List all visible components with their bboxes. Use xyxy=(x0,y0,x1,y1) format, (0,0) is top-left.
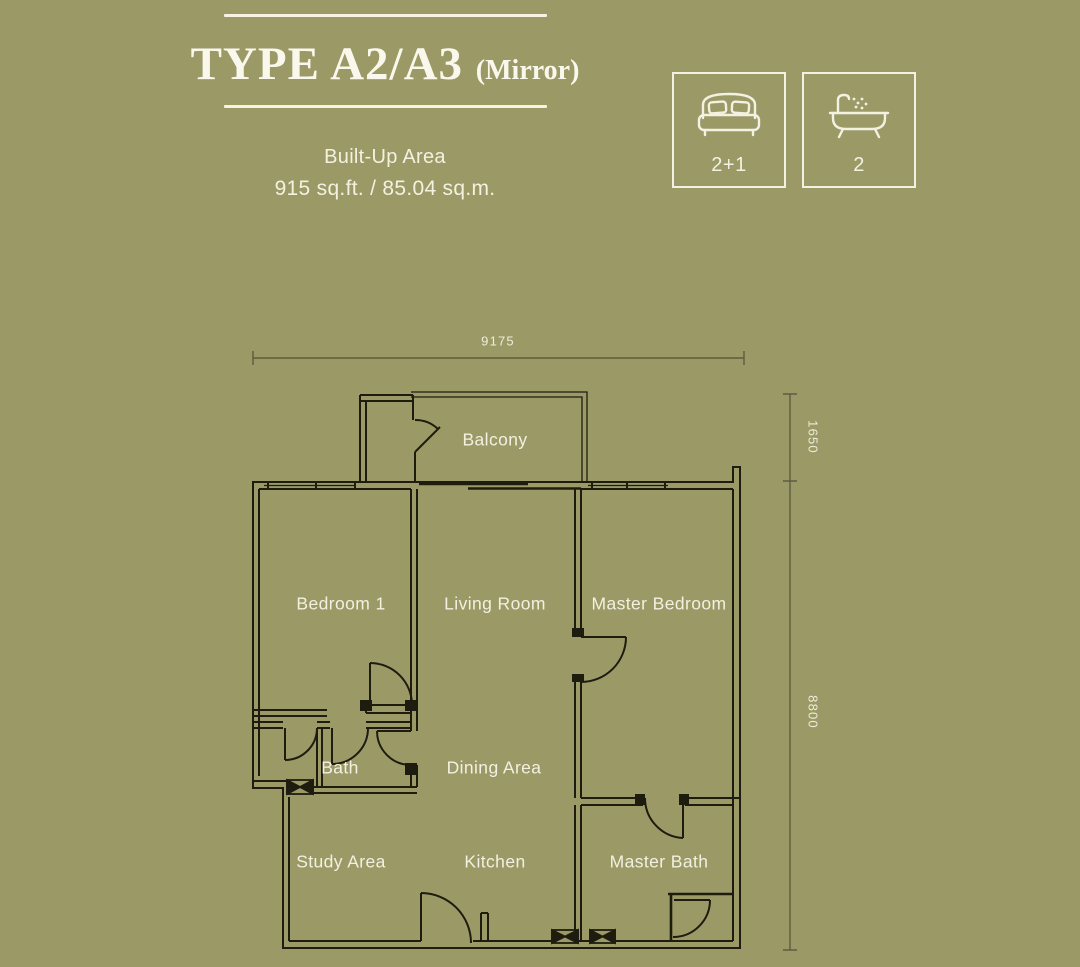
room-label-master-bedroom: Master Bedroom xyxy=(592,594,727,615)
room-label-balcony: Balcony xyxy=(462,430,527,451)
louvre-window-icon xyxy=(590,930,615,943)
floor-plan-drawing xyxy=(0,0,1080,967)
louvre-window-icon xyxy=(287,780,313,794)
room-label-bedroom-1: Bedroom 1 xyxy=(296,594,385,615)
room-label-kitchen: Kitchen xyxy=(464,852,525,873)
floor-plan-page: { "page": { "background_color": "#9b9a67… xyxy=(0,0,1080,967)
room-label-living-room: Living Room xyxy=(444,594,546,615)
room-label-study-area: Study Area xyxy=(296,852,386,873)
dimension-unit-depth: 8800 xyxy=(806,695,821,729)
dimension-balcony-depth: 1650 xyxy=(806,420,821,454)
room-label-bath: Bath xyxy=(321,758,359,779)
room-label-dining-area: Dining Area xyxy=(447,758,542,779)
dimension-width: 9175 xyxy=(481,334,515,349)
room-label-master-bath: Master Bath xyxy=(610,852,709,873)
louvre-window-icon xyxy=(552,930,578,943)
